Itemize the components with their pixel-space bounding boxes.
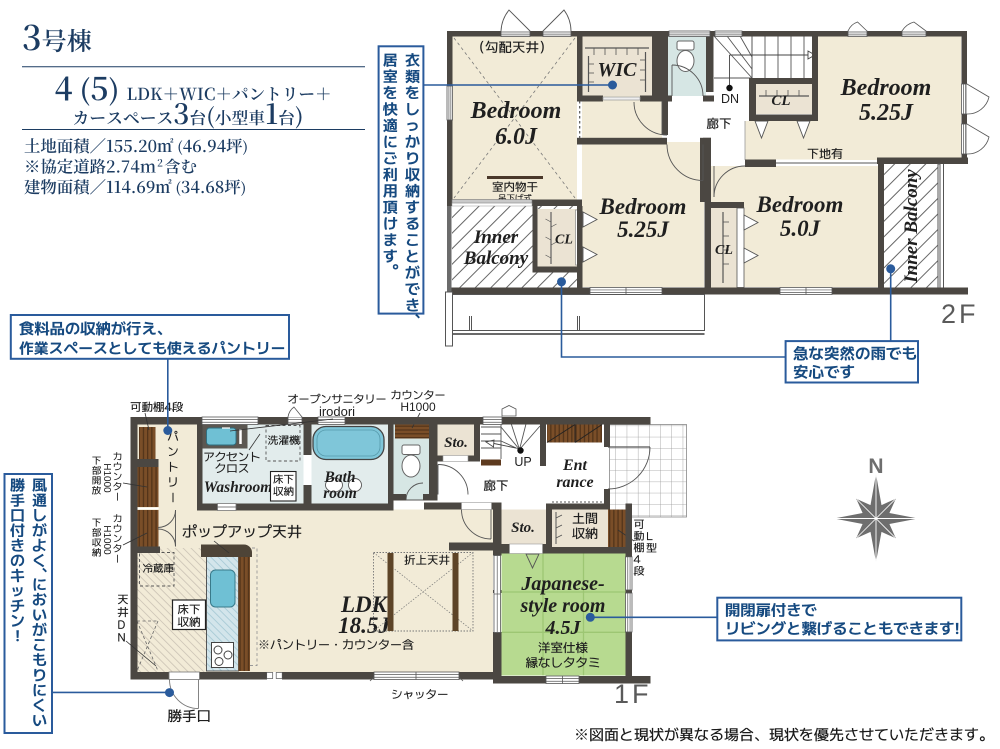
svg-text:Bedroom: Bedroom — [470, 98, 562, 124]
svg-text:Ent: Ent — [562, 457, 588, 474]
svg-text:5.0J: 5.0J — [780, 216, 822, 241]
svg-text:N: N — [868, 455, 883, 478]
svg-text:4.5J: 4.5J — [545, 617, 582, 639]
svg-text:Bedroom: Bedroom — [756, 192, 844, 217]
svg-text:CL: CL — [771, 93, 790, 109]
svg-text:DN: DN — [721, 92, 739, 106]
svg-text:Bedroom: Bedroom — [599, 194, 687, 219]
svg-text:Inner Balcony: Inner Balcony — [901, 169, 922, 284]
svg-text:Balcony: Balcony — [463, 248, 529, 269]
svg-text:Washroom: Washroom — [204, 479, 273, 496]
svg-text:Inner: Inner — [473, 227, 519, 248]
svg-text:H1000: H1000 — [101, 463, 112, 493]
svg-text:CL: CL — [715, 243, 733, 258]
svg-text:Sto.: Sto. — [511, 520, 535, 536]
svg-text:Bedroom: Bedroom — [840, 75, 932, 101]
svg-text:1F: 1F — [614, 679, 652, 709]
svg-text:room: room — [323, 485, 357, 502]
svg-text:WIC: WIC — [598, 59, 638, 81]
svg-text:6.0J: 6.0J — [495, 124, 538, 150]
svg-text:CL: CL — [555, 233, 573, 248]
svg-text:5.25J: 5.25J — [859, 100, 914, 126]
svg-text:Sto.: Sto. — [444, 435, 468, 451]
svg-text:Bath: Bath — [323, 469, 355, 486]
svg-text:rance: rance — [556, 474, 593, 491]
svg-text:H1000: H1000 — [400, 400, 436, 414]
svg-text:2F: 2F — [941, 299, 979, 329]
svg-text:Japanese-: Japanese- — [520, 573, 604, 595]
svg-text:H1000: H1000 — [101, 525, 112, 555]
svg-text:18.5J: 18.5J — [338, 613, 391, 638]
svg-text:UP: UP — [514, 455, 531, 469]
svg-text:5.25J: 5.25J — [617, 217, 670, 242]
